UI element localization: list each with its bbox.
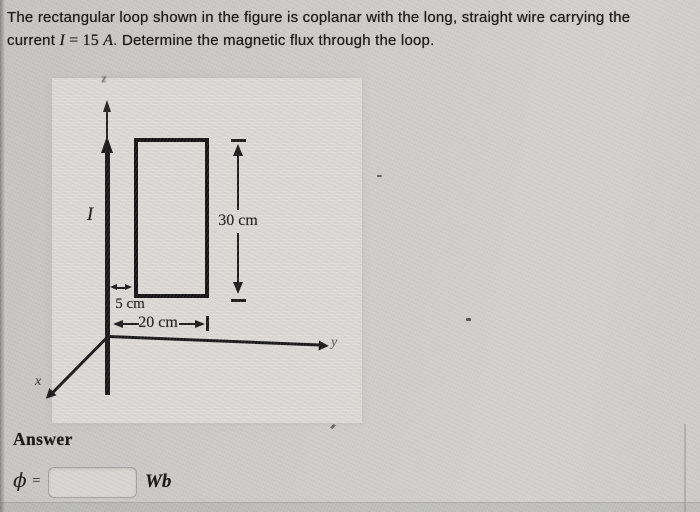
problem-line-1: The rectangular loop shown in the figure… <box>7 6 699 29</box>
dimension-arrow-down-icon <box>233 282 243 294</box>
width-dimension-line-right <box>179 323 196 326</box>
scan-edge-shadow <box>0 0 5 512</box>
problem-line-2-rest: . Determine the magnetic flux through th… <box>113 32 434 49</box>
offset-dimension-label: 5 cm <box>108 296 152 313</box>
current-unit: A <box>103 32 113 49</box>
scan-speck <box>466 318 471 321</box>
y-axis-line <box>108 335 320 347</box>
dimension-line-lower <box>237 233 239 283</box>
scan-bottom-band <box>0 502 700 512</box>
width-dimension-tick <box>206 316 209 331</box>
z-axis-arrow-icon <box>103 100 111 112</box>
z-axis-line <box>106 112 108 138</box>
x-axis-arrow-icon <box>43 388 57 402</box>
dimension-cap-bottom <box>231 299 246 302</box>
y-axis-arrow-icon <box>319 340 329 350</box>
scan-speck <box>377 175 382 177</box>
current-label: I <box>82 204 98 226</box>
problem-statement: The rectangular loop shown in the figure… <box>7 6 699 52</box>
y-axis-label: y <box>331 335 337 351</box>
current-value: = 15 <box>65 32 103 49</box>
flux-answer-input[interactable] <box>48 467 137 498</box>
quiz-page: The rectangular loop shown in the figure… <box>0 0 700 512</box>
scan-crease <box>684 424 686 512</box>
answer-heading: Answer <box>13 429 73 450</box>
problem-line-2-text: current <box>7 32 59 49</box>
x-axis-label: x <box>35 374 41 390</box>
width-arrow-right-icon <box>195 320 205 328</box>
x-axis-line <box>51 335 109 393</box>
width-dimension-label: 20 cm <box>134 314 182 332</box>
equals-sign: = <box>32 473 40 490</box>
figure-panel: z I 30 cm 5 cm 20 cm y x <box>52 78 362 423</box>
height-dimension-label: 30 cm <box>210 212 266 230</box>
flux-symbol: ϕ <box>13 468 27 492</box>
dimension-line-upper <box>237 155 239 210</box>
straight-wire <box>105 151 110 395</box>
dimension-cap-top <box>231 139 246 142</box>
scan-speck <box>330 424 336 429</box>
z-axis-label: z <box>96 71 112 86</box>
offset-arrow-right-icon <box>125 284 132 290</box>
problem-line-2: current I = 15 A. Determine the magnetic… <box>7 29 699 52</box>
flux-unit-label: Wb <box>145 471 171 493</box>
rectangular-loop <box>134 138 209 298</box>
